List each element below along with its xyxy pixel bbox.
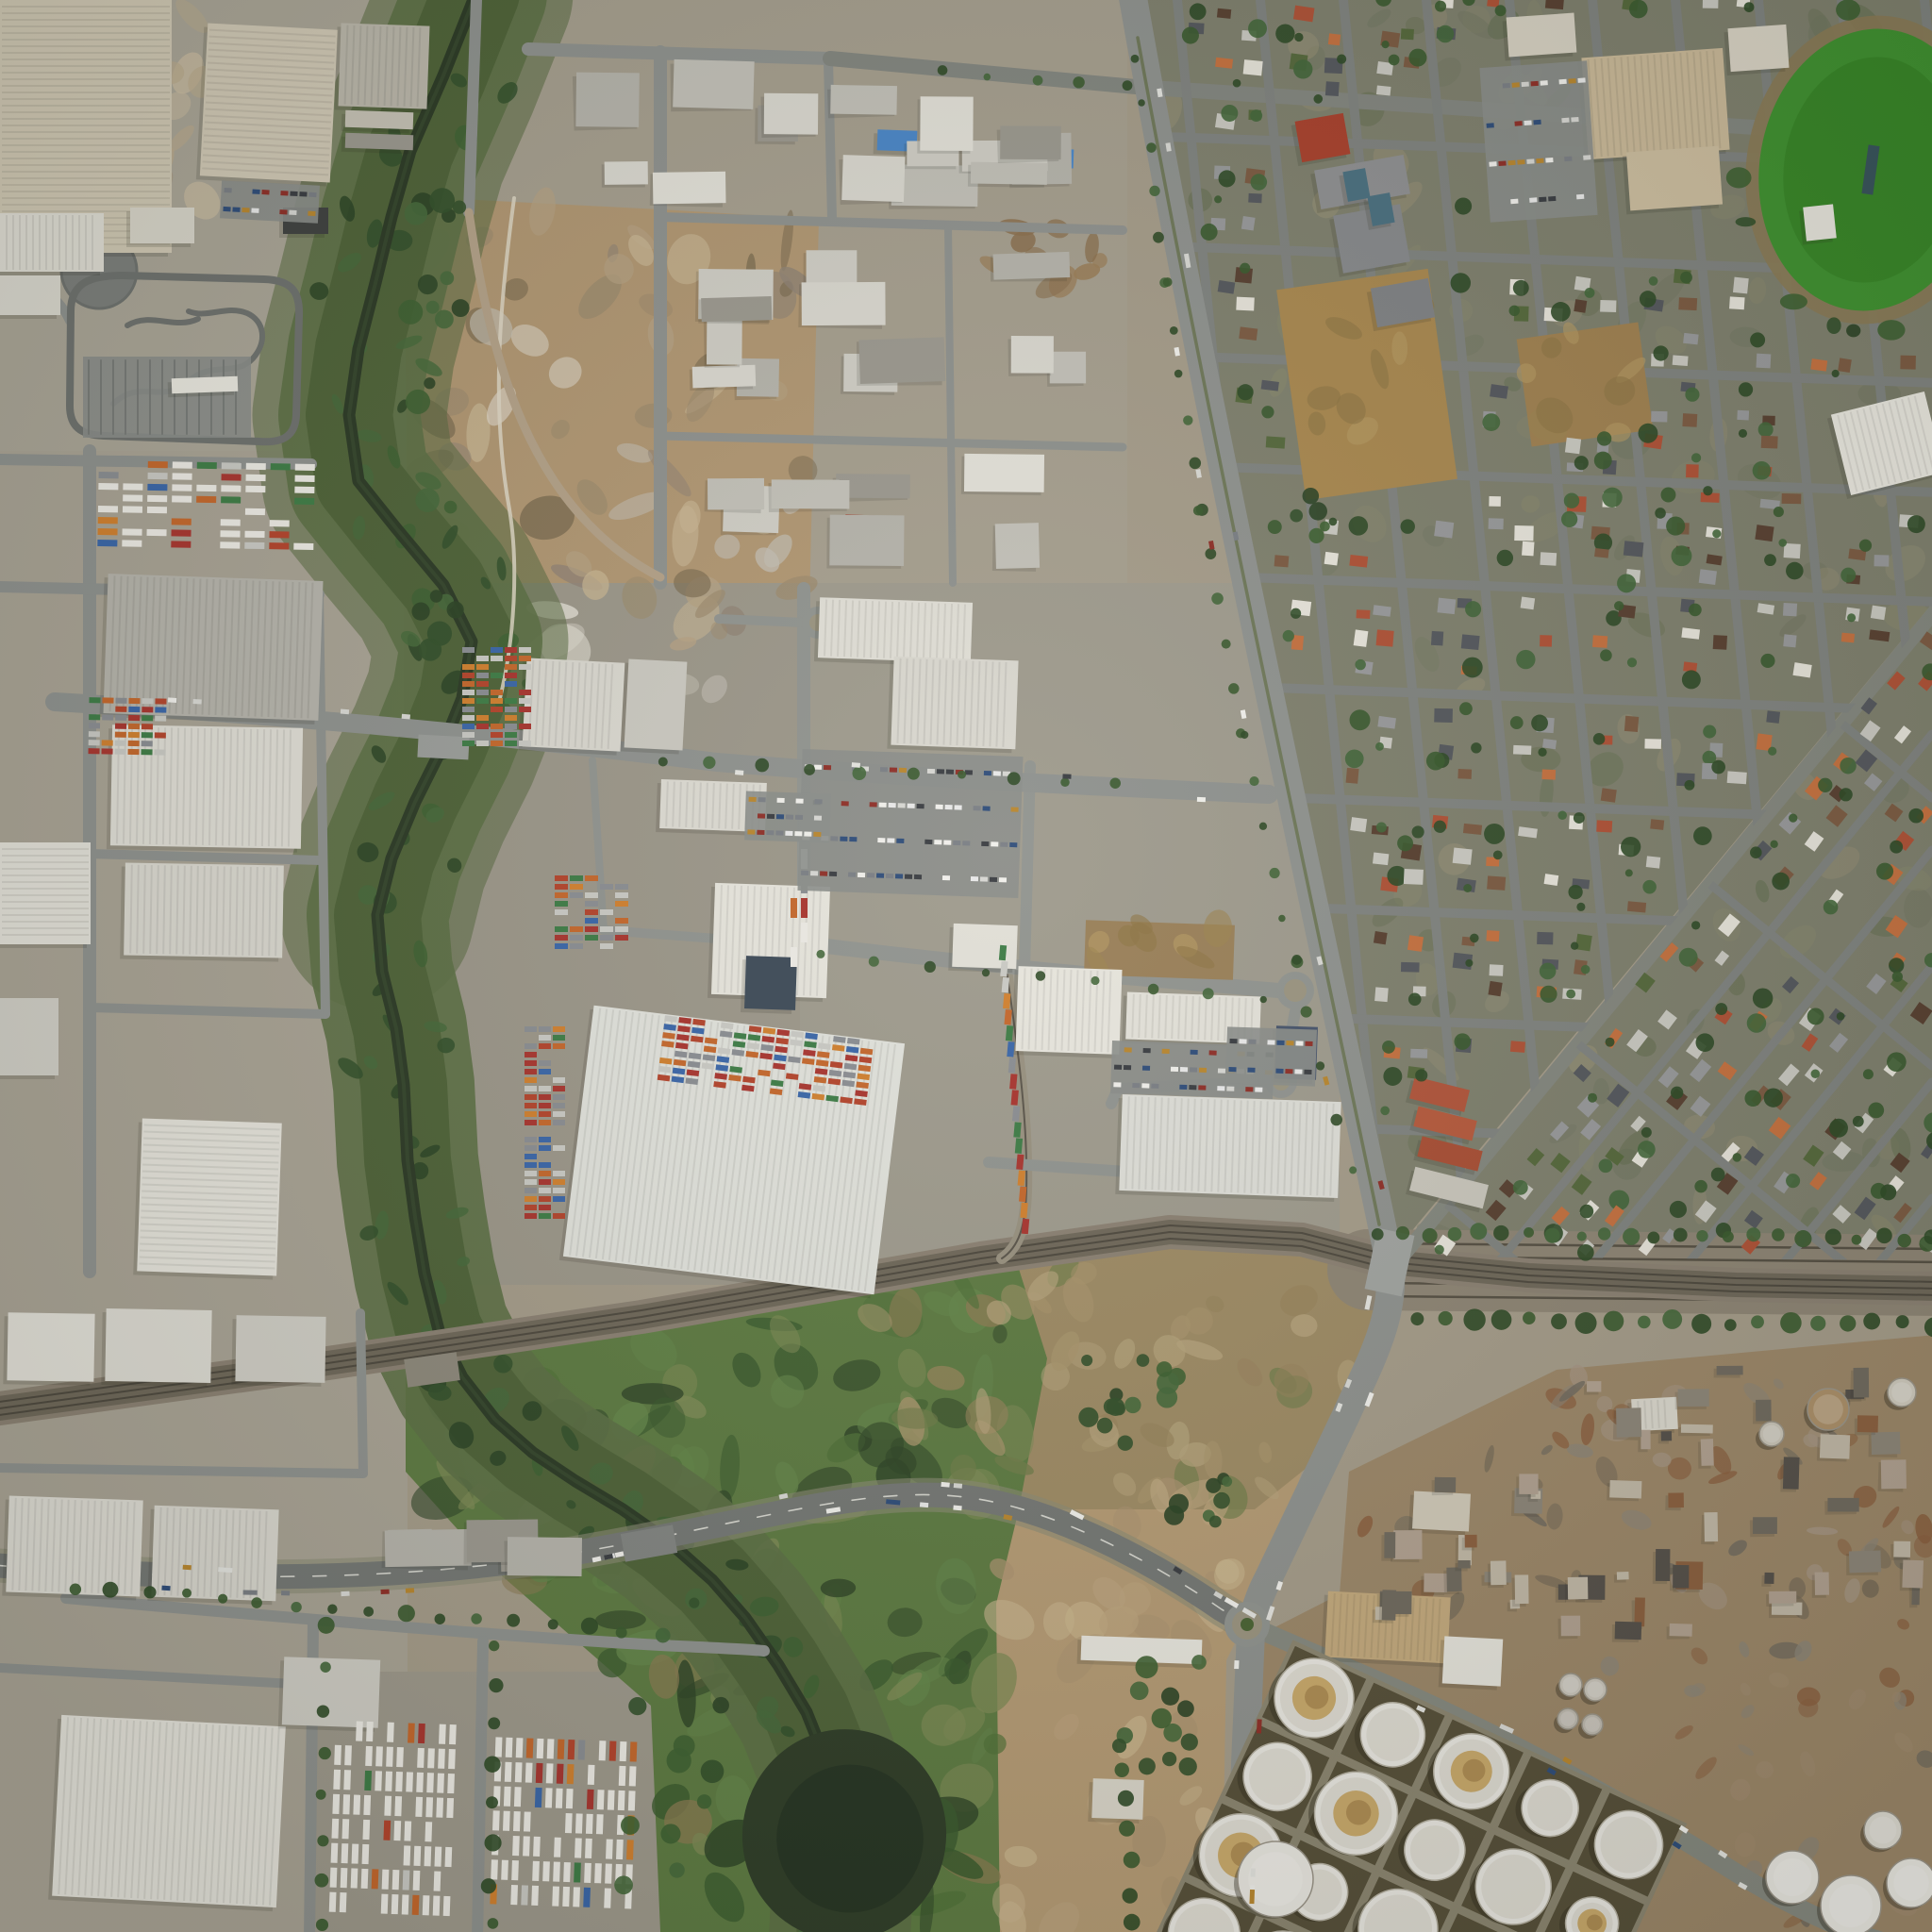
satellite-image: [0, 0, 1932, 1932]
map-viewport[interactable]: [0, 0, 1932, 1932]
